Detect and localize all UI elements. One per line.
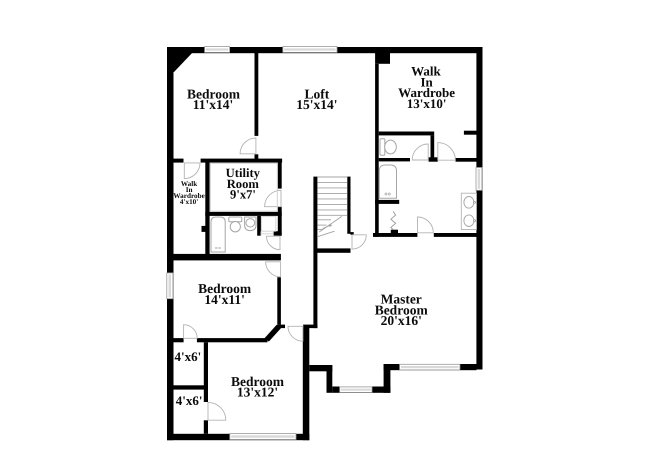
svg-text:4'x10': 4'x10' bbox=[180, 198, 198, 206]
svg-text:15'x14': 15'x14' bbox=[296, 97, 337, 112]
svg-text:20'x16': 20'x16' bbox=[381, 313, 422, 328]
svg-text:4'x6': 4'x6' bbox=[175, 349, 202, 364]
svg-text:14'x11': 14'x11' bbox=[204, 292, 245, 307]
svg-text:9'x7': 9'x7' bbox=[230, 187, 256, 201]
svg-text:13'x12': 13'x12' bbox=[237, 385, 278, 400]
svg-text:11'x14': 11'x14' bbox=[193, 97, 234, 112]
svg-text:4'x6': 4'x6' bbox=[176, 393, 203, 408]
svg-text:13'x10': 13'x10' bbox=[407, 96, 447, 111]
